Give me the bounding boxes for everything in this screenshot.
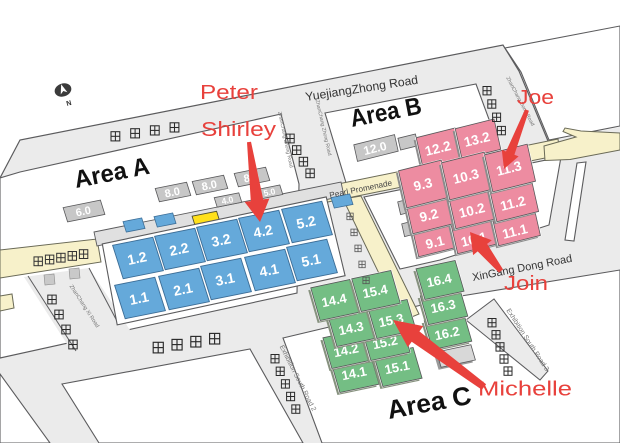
svg-text:Michelle: Michelle — [478, 379, 572, 401]
svg-text:Joe: Joe — [517, 87, 554, 109]
svg-text:Join: Join — [504, 273, 548, 295]
svg-text:Peter: Peter — [200, 82, 258, 104]
svg-text:Shirley: Shirley — [201, 119, 276, 141]
